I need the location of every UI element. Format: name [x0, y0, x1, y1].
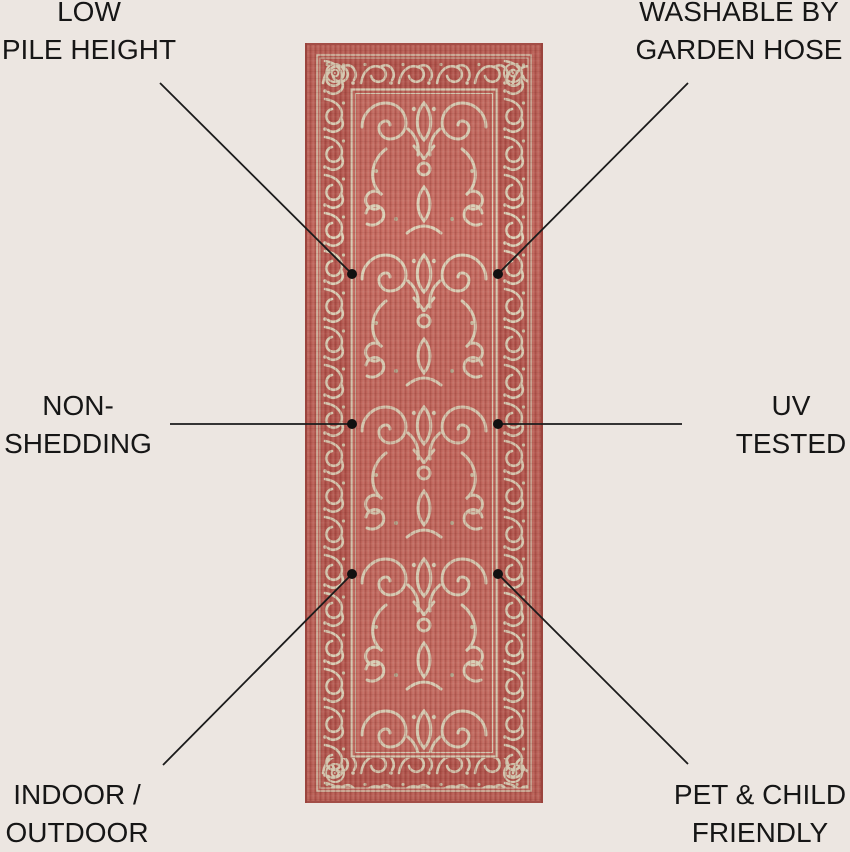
- callout-text-line: WASHABLE BY: [619, 0, 850, 31]
- callout-text-line: INDOOR /: [0, 776, 197, 814]
- infographic-stage: LOW PILE HEIGHT WASHABLE BY GARDEN HOSE …: [0, 0, 850, 850]
- callout-text-line: FRIENDLY: [640, 814, 850, 852]
- callout-label-non-shedding: NON- SHEDDING: [0, 387, 198, 463]
- callout-label-washable: WASHABLE BY GARDEN HOSE: [619, 0, 850, 69]
- callout-text-line: GARDEN HOSE: [619, 31, 850, 69]
- callout-text-line: OUTDOOR: [0, 814, 197, 852]
- callout-label-indoor-outdoor: INDOOR / OUTDOOR: [0, 776, 197, 852]
- rug-svg: [305, 43, 543, 803]
- callout-label-low-pile-height: LOW PILE HEIGHT: [0, 0, 209, 69]
- callout-label-pet-child-friendly: PET & CHILD FRIENDLY: [640, 776, 850, 852]
- callout-text-line: TESTED: [671, 425, 850, 463]
- callout-text-line: NON-: [0, 387, 198, 425]
- rug-image: [305, 43, 543, 803]
- callout-text-line: PET & CHILD: [640, 776, 850, 814]
- callout-text-line: LOW: [0, 0, 209, 31]
- callout-text-line: PILE HEIGHT: [0, 31, 209, 69]
- callout-label-uv-tested: UV TESTED: [671, 387, 850, 463]
- callout-text-line: SHEDDING: [0, 425, 198, 463]
- callout-text-line: UV: [671, 387, 850, 425]
